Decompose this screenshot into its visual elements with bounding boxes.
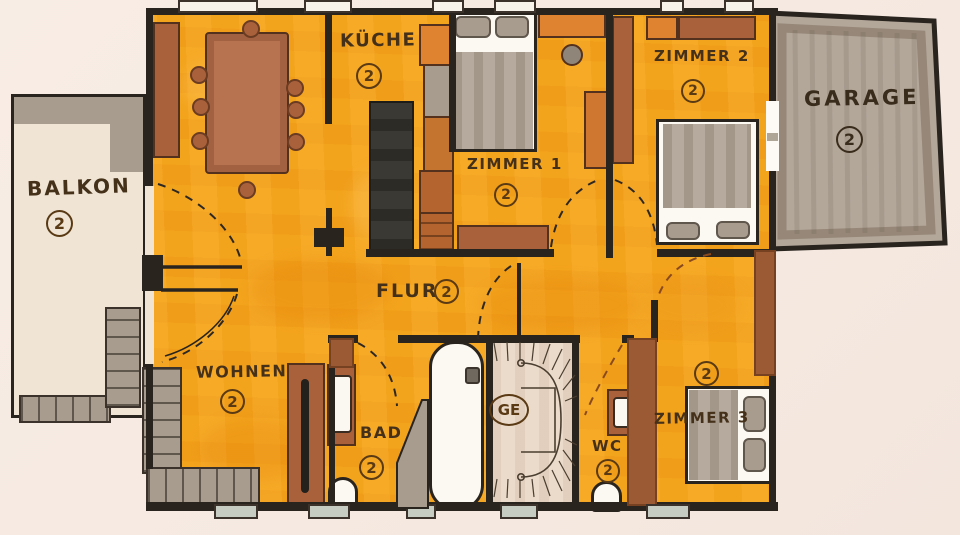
dining-chair [192, 98, 210, 116]
level-badge-balkon: 2 [46, 210, 73, 237]
cabinet-zimmer1 [538, 11, 606, 38]
exterior-steps-b [105, 307, 141, 408]
wall-dining-kitchen [325, 8, 332, 124]
blanket-zimmer3 [689, 390, 738, 480]
window-sill [406, 504, 436, 519]
cabinet-zimmer2 [678, 16, 756, 40]
wall-left-door-stub [142, 255, 163, 291]
wall-zimmer3-jog [651, 300, 658, 342]
dining-table [205, 32, 289, 174]
window-sill [214, 504, 258, 519]
wall-stair-right [572, 335, 579, 509]
level-badge-zimmer2: 2 [681, 79, 705, 103]
room-label-wc: WC [592, 437, 623, 455]
dining-chair [191, 132, 209, 150]
level-badge-bad: 2 [359, 455, 384, 480]
pillow [716, 221, 750, 239]
wall-zimmer1-zimmer2 [606, 8, 613, 258]
pillow [666, 222, 700, 240]
pillow [495, 16, 529, 38]
blanket-zimmer2 [663, 124, 751, 208]
cabinet-zimmer2 [646, 16, 678, 40]
door-opening-balcony-lower [145, 291, 154, 364]
dining-chair [287, 133, 305, 151]
kitchen-counter [369, 101, 414, 253]
wall-wc-zimmer3 [627, 338, 657, 506]
tv [301, 379, 309, 493]
room-label-zimmer3: ZIMMER 3 [654, 408, 750, 428]
wall-hall-bad-right [398, 335, 490, 343]
window [724, 0, 754, 13]
stair-label-ge: GE [489, 394, 529, 426]
wall-bad-stub [329, 338, 354, 368]
level-badge-flur: 2 [434, 279, 459, 304]
balcony-parapet-top [14, 97, 143, 124]
window [494, 0, 536, 13]
room-label-flur: FLUR [376, 280, 438, 302]
dining-chair [238, 181, 256, 199]
level-badge-wohnen: 2 [220, 389, 245, 414]
bathtub-faucet [465, 367, 480, 384]
level-badge-zimmer1: 2 [494, 183, 518, 207]
window [304, 0, 352, 13]
room-label-kueche: KÜCHE [340, 29, 417, 51]
level-badge-zimmer3: 2 [694, 361, 719, 386]
dining-chair [287, 101, 305, 119]
room-label-garage: GARAGE [804, 85, 920, 111]
wall-right-brown [754, 250, 776, 376]
window [432, 0, 464, 13]
window-sill [500, 504, 538, 519]
pillow [743, 438, 766, 472]
wall-stair-top [486, 335, 580, 343]
room-label-bad: BAD [360, 423, 402, 442]
room-label-zimmer1: ZIMMER 1 [467, 155, 563, 173]
level-badge-kueche: 2 [356, 63, 382, 89]
room-label-wohnen: WOHNEN [196, 361, 288, 382]
wall-zimmer1-bottom [451, 249, 554, 257]
dining-chair [286, 79, 304, 97]
wardrobe-zimmer2 [612, 16, 634, 164]
balcony-parapet-side [110, 124, 143, 172]
floor-plan: BALKON 2 KÜCHE 2 ZIMMER 1 2 ZIMMER 2 2 G… [0, 0, 960, 535]
exterior-steps-a [19, 395, 111, 423]
level-badge-garage: 2 [836, 126, 863, 153]
window [660, 0, 684, 13]
window [178, 0, 258, 13]
wall-kitchen-zimmer1 [451, 8, 456, 150]
door-opening-garage-tick [767, 133, 778, 141]
kitchen-cabinet [419, 212, 454, 252]
sideboard-dining [153, 22, 180, 158]
window-sill [646, 504, 690, 519]
wall-stair-left [486, 335, 493, 509]
dining-chair [190, 66, 208, 84]
blanket-zimmer1 [453, 52, 533, 149]
wall-kitchen-bottom [366, 249, 458, 257]
wall-stub-block [314, 228, 344, 247]
room-label-balkon: BALKON [27, 173, 132, 201]
pillow [455, 16, 491, 38]
wall-right-upper [769, 8, 776, 104]
door-opening-balcony-upper [145, 186, 154, 255]
dining-chair [242, 20, 260, 38]
kitchen-cabinet [419, 170, 454, 214]
room-label-zimmer2: ZIMMER 2 [654, 47, 750, 65]
wall-left-upper [146, 8, 153, 186]
sideboard-zimmer1 [457, 225, 549, 252]
stool-zimmer1 [561, 44, 583, 66]
window-sill [308, 504, 350, 519]
level-badge-wc: 2 [596, 459, 620, 483]
wall-left-lower [146, 364, 153, 469]
